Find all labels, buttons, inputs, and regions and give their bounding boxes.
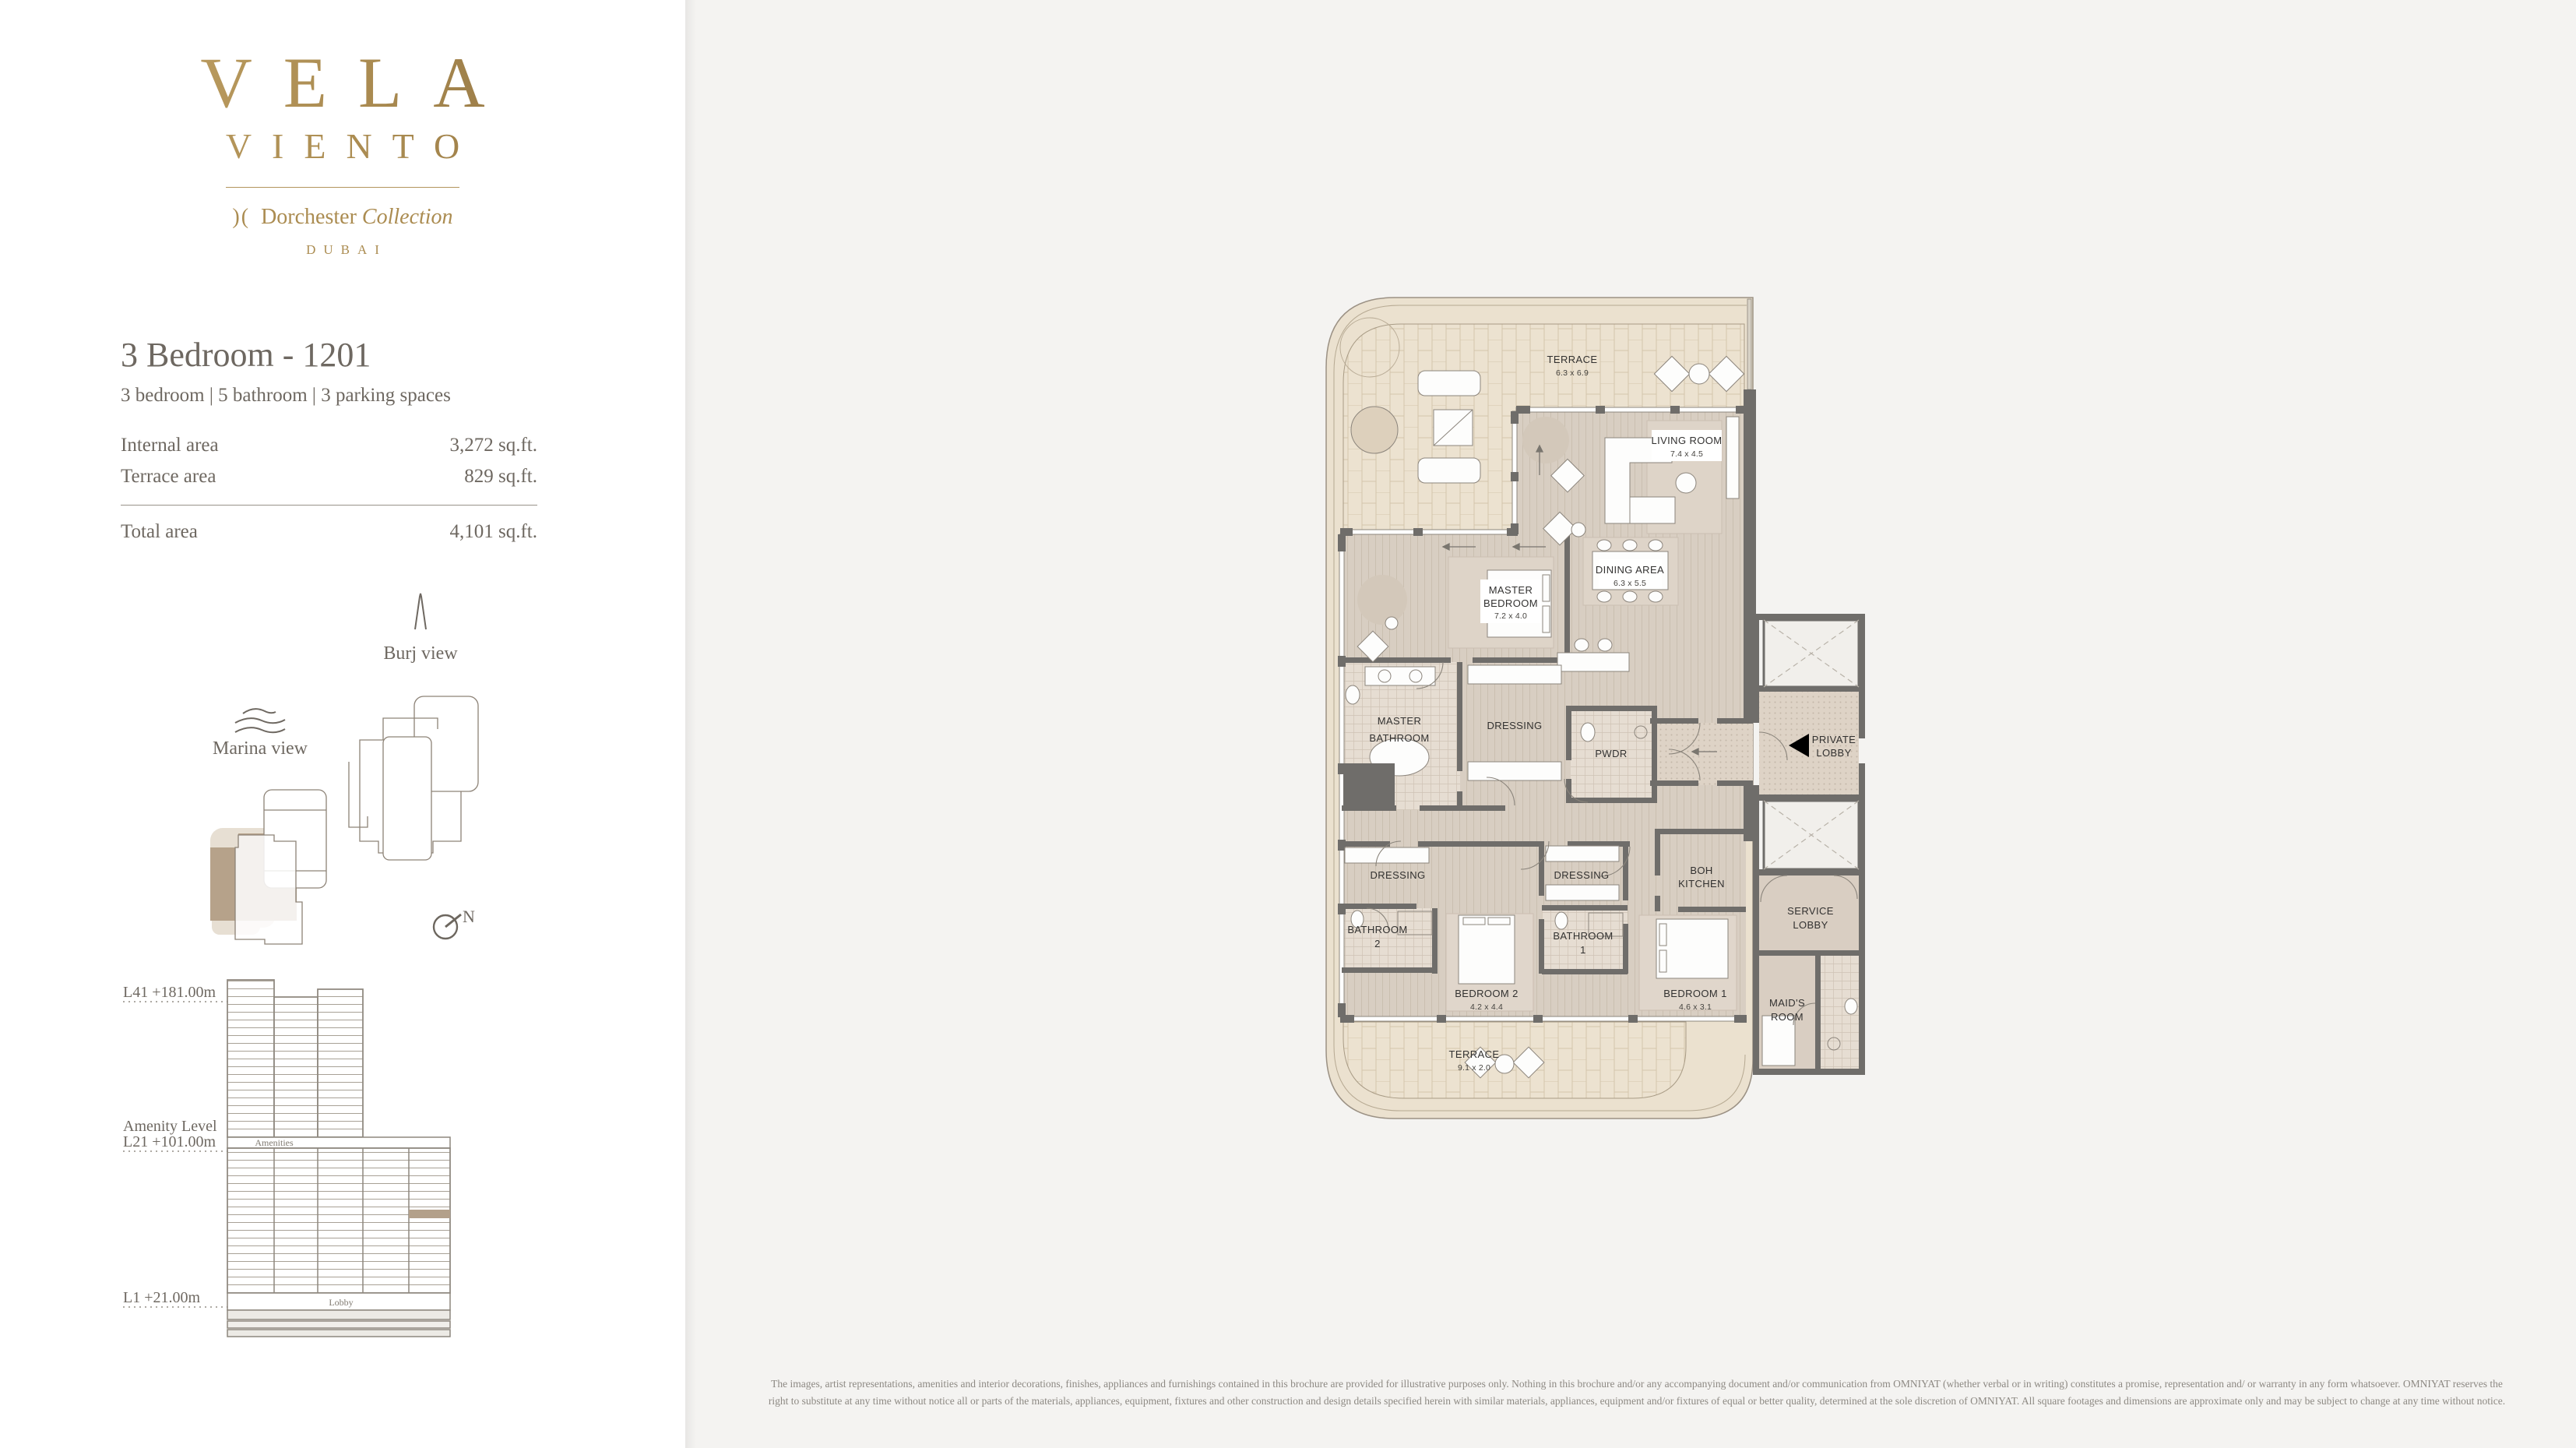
sidebar: VELA VIENTO )(Dorchester Collection DUBA… bbox=[0, 0, 685, 1448]
unit-subtitle: 3 bedroom | 5 bathroom | 3 parking space… bbox=[121, 385, 557, 407]
collection-line: )(Dorchester Collection bbox=[0, 205, 685, 230]
city-label: DUBAI bbox=[0, 242, 685, 258]
room-label: BATHROOM bbox=[1369, 732, 1429, 744]
room-label: MASTER bbox=[1378, 715, 1422, 727]
collection-word: Collection bbox=[362, 205, 453, 229]
elevation-tower bbox=[227, 980, 450, 1337]
table-row: Terrace area 829 sq.ft. bbox=[121, 466, 537, 488]
room-label: ROOM bbox=[1771, 1011, 1804, 1023]
legal-disclaimer: The images, artist representations, amen… bbox=[762, 1376, 2512, 1409]
dorchester-icon: )( bbox=[232, 205, 250, 229]
terrace-area-label: Terrace area bbox=[121, 466, 216, 488]
key-plan-tower-b bbox=[349, 696, 478, 860]
room-dims: 4.2 x 4.4 bbox=[1470, 1002, 1503, 1012]
level-l1-label: L1 +21.00m bbox=[123, 1289, 200, 1306]
room-label: LIVING ROOM bbox=[1651, 435, 1722, 446]
brand-name-primary: VELA bbox=[0, 45, 685, 121]
room-dims: 9.1 x 2.0 bbox=[1458, 1063, 1490, 1073]
room-dims: 7.2 x 4.0 bbox=[1494, 611, 1527, 621]
room-label: 1 bbox=[1580, 944, 1586, 956]
room-label: LOBBY bbox=[1816, 747, 1851, 759]
room-label: DINING AREA bbox=[1596, 564, 1664, 576]
room-label: BATHROOM bbox=[1347, 924, 1407, 935]
room-label: TERRACE bbox=[1547, 354, 1598, 365]
room-label: MASTER bbox=[1489, 584, 1533, 596]
room-label: BOH bbox=[1690, 865, 1712, 876]
lobby-floor-label: Lobby bbox=[329, 1297, 353, 1308]
table-divider bbox=[121, 505, 537, 506]
room-label: DRESSING bbox=[1370, 869, 1425, 881]
amenities-floor-label: Amenities bbox=[255, 1137, 294, 1148]
room-label: BEDROOM bbox=[1483, 597, 1538, 609]
room-label: PWDR bbox=[1595, 748, 1627, 759]
room-label: BEDROOM 1 bbox=[1663, 988, 1727, 999]
marina-view-icon bbox=[235, 709, 285, 732]
key-plan-diagram: Burj view Marina view bbox=[187, 584, 553, 978]
marina-view-label: Marina view bbox=[213, 738, 308, 759]
room-label: SERVICE bbox=[1787, 905, 1834, 917]
key-plan-tower-a bbox=[210, 790, 326, 944]
amenity-level-label: Amenity Level bbox=[123, 1118, 217, 1135]
table-row: Internal area 3,272 sq.ft. bbox=[121, 435, 537, 456]
floor-plan: TERRACE 6.3 x 6.9 LIVING ROOM 7.4 x 4.5 … bbox=[1320, 296, 1904, 1129]
page-title: 3 Bedroom - 1201 bbox=[121, 336, 557, 374]
room-label: PRIVATE bbox=[1812, 734, 1856, 745]
room-dims: 6.3 x 5.5 bbox=[1614, 579, 1646, 588]
area-table: Internal area 3,272 sq.ft. Terrace area … bbox=[121, 435, 537, 552]
total-area-value: 4,101 sq.ft. bbox=[450, 521, 538, 543]
collection-name: Dorchester bbox=[261, 205, 357, 229]
elevation-unit-level-highlight bbox=[409, 1210, 450, 1218]
table-row: Total area 4,101 sq.ft. bbox=[121, 521, 537, 543]
room-label: BEDROOM 2 bbox=[1455, 988, 1519, 999]
terrace-area-value: 829 sq.ft. bbox=[464, 466, 537, 488]
room-dims: 7.4 x 4.5 bbox=[1670, 449, 1703, 459]
room-dims: 4.6 x 3.1 bbox=[1679, 1002, 1712, 1012]
room-label: BATHROOM bbox=[1553, 930, 1613, 942]
room-dims: 6.3 x 6.9 bbox=[1556, 368, 1589, 378]
room-label: TERRACE bbox=[1449, 1048, 1500, 1060]
room-label: MAID'S bbox=[1769, 997, 1805, 1009]
panel-divider bbox=[685, 0, 696, 1448]
internal-area-value: 3,272 sq.ft. bbox=[450, 435, 538, 456]
burj-view-label: Burj view bbox=[383, 643, 458, 664]
compass-north-label: N bbox=[463, 907, 475, 926]
level-l21-label: L21 +101.00m bbox=[123, 1133, 216, 1150]
room-label: 2 bbox=[1374, 938, 1381, 949]
internal-area-label: Internal area bbox=[121, 435, 219, 456]
logo-divider bbox=[226, 187, 459, 188]
room-label: DRESSING bbox=[1554, 869, 1609, 881]
brand-name-secondary: VIENTO bbox=[0, 125, 685, 167]
brand-logo: VELA VIENTO )(Dorchester Collection DUBA… bbox=[0, 45, 685, 258]
burj-view-icon bbox=[415, 594, 426, 629]
total-area-label: Total area bbox=[121, 521, 198, 543]
room-label: KITCHEN bbox=[1678, 878, 1725, 890]
level-l41-label: L41 +181.00m bbox=[123, 984, 216, 1001]
building-elevation-diagram: L41 +181.00m Amenity Level L21 +101.00m … bbox=[109, 966, 654, 1402]
room-label: LOBBY bbox=[1793, 919, 1828, 931]
room-label: DRESSING bbox=[1487, 720, 1542, 731]
compass-icon bbox=[434, 914, 461, 939]
